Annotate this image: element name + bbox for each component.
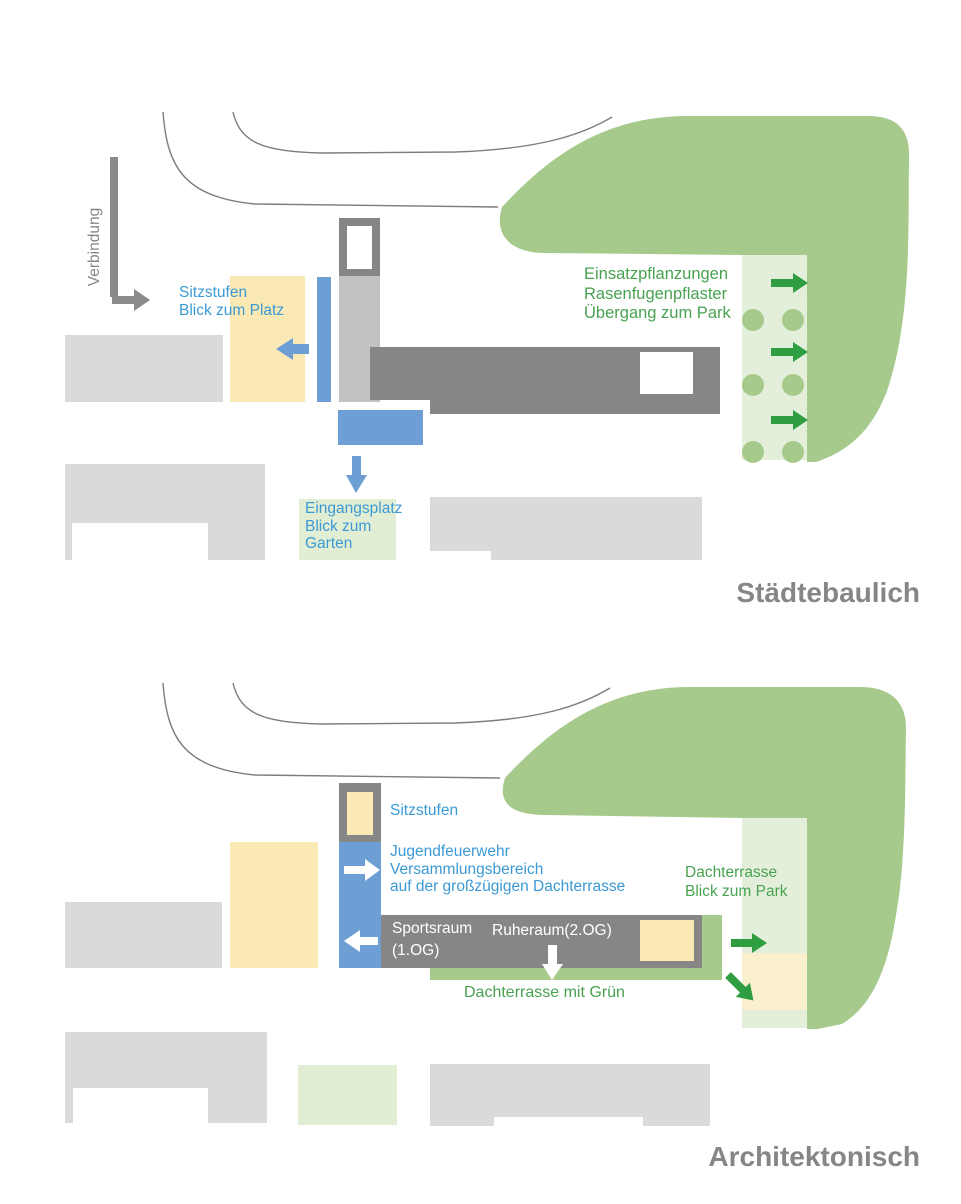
verbindung-arrow-line [110, 157, 118, 297]
label-line: Eingangsplatz [305, 500, 402, 518]
tree-circle [742, 441, 764, 463]
label-line: Blick zum Park [685, 882, 788, 901]
building-u-shape [65, 464, 265, 560]
building-yellow-room [640, 920, 694, 961]
building-block [65, 335, 223, 402]
tower-seating [347, 792, 373, 835]
entrance-block [338, 410, 423, 445]
street-outline-inner [233, 683, 610, 724]
tree-circle [742, 374, 764, 396]
building-block [430, 497, 702, 560]
planting-label: Einsatzpflanzungen Rasenfugenpflaster Üb… [584, 265, 731, 324]
eingangsplatz-label: Eingangsplatz Blick zum Garten [305, 500, 402, 553]
label-line: Jugendfeuerwehr [390, 843, 625, 861]
label-line: Garten [305, 535, 402, 553]
street-outline-inner [233, 112, 612, 153]
label-line: Versammlungsbereich [390, 861, 625, 879]
blue-edge-bar [317, 277, 331, 402]
jugendfeuerwehr-label: Jugendfeuerwehr Versammlungsbereich auf … [390, 843, 625, 896]
tree-circle [782, 309, 804, 331]
label-line: Übergang zum Park [584, 304, 731, 324]
label-line: auf der großzügigen Dachterrasse [390, 878, 625, 896]
dachterrasse-gruen-label: Dachterrasse mit Grün [464, 983, 625, 1003]
arrow-down-icon [346, 456, 367, 493]
ruheraum-label: Ruheraum(2.OG) [492, 920, 612, 942]
site-diagrams: Verbindung Sitzstufen Blick zum Platz Ei… [0, 0, 961, 1204]
tree-circle [742, 309, 764, 331]
tree-circle [782, 441, 804, 463]
sitzstufen-label: Sitzstufen [390, 802, 458, 820]
tower-window [347, 226, 372, 269]
label-line: Einsatzpflanzungen [584, 265, 731, 285]
building-u-shape [65, 1032, 267, 1123]
diagram-title-architektonisch: Architektonisch [560, 1141, 920, 1173]
label-line: Blick zum Platz [179, 302, 284, 320]
sportsraum-label: Sportsraum (1.OG) [392, 918, 472, 961]
terrace-strip-seating [742, 953, 807, 1010]
tree-circle [782, 374, 804, 396]
yellow-block [230, 842, 318, 968]
label-line: Rasenfugenpflaster [584, 285, 731, 305]
building-block [430, 1064, 710, 1126]
dachterrasse-park-label: Dachterrasse Blick zum Park [685, 863, 788, 901]
label-line: Blick zum [305, 518, 402, 536]
green-block [298, 1065, 397, 1125]
building-window [640, 352, 693, 394]
label-line: Sitzstufen [179, 284, 284, 302]
label-line: Dachterrasse [685, 863, 788, 882]
label-line: (1.OG) [392, 940, 472, 962]
sitzstufen-platz-label: Sitzstufen Blick zum Platz [179, 284, 284, 319]
label-line: Sportsraum [392, 918, 472, 940]
verbindung-label: Verbindung [86, 187, 104, 307]
diagram-title-staedtebaulich: Städtebaulich [560, 577, 920, 609]
street-outline-outer [163, 112, 498, 207]
terrace-strip [742, 1010, 807, 1028]
street-outline-outer [163, 683, 500, 778]
building-block [65, 902, 222, 968]
